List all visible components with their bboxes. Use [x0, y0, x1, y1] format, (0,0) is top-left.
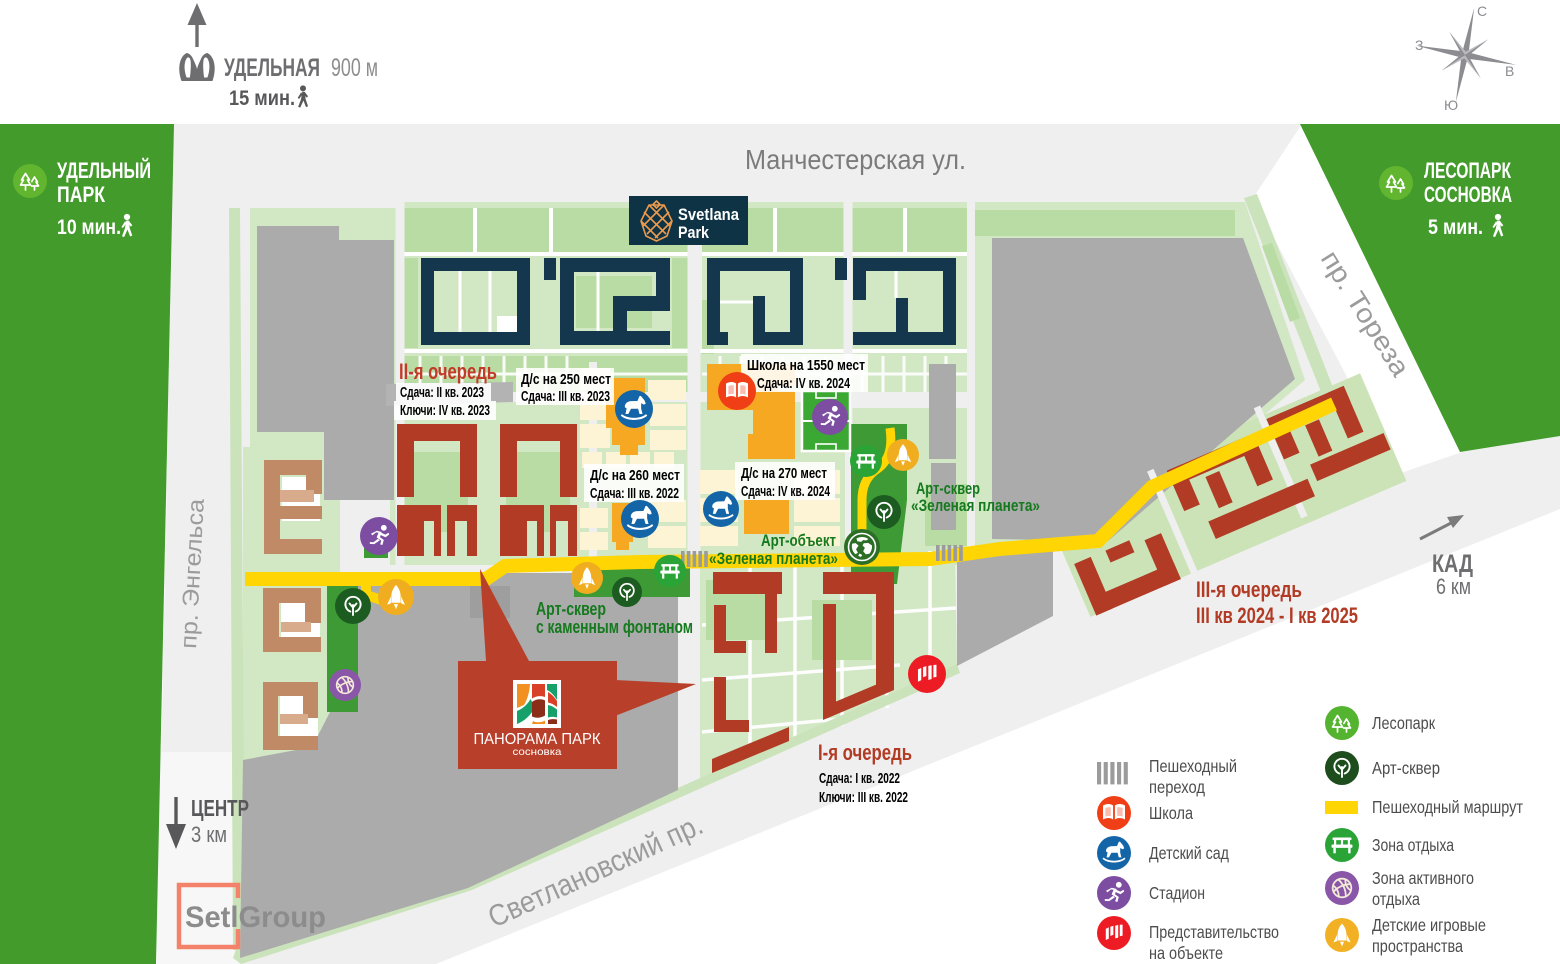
svg-text:С: С — [1477, 3, 1487, 19]
svg-text:Представительство: Представительство — [1149, 922, 1279, 942]
svg-text:с каменным фонтаном: с каменным фонтаном — [536, 617, 693, 637]
svg-text:Арт-сквер: Арт-сквер — [1372, 758, 1440, 778]
svg-text:Лесопарк: Лесопарк — [1372, 713, 1435, 733]
svg-text:«Зеленая планета»: «Зеленая планета» — [911, 497, 1040, 515]
svg-text:Пешеходный маршрут: Пешеходный маршрут — [1372, 797, 1523, 817]
svg-text:ЛЕСОПАРК: ЛЕСОПАРК — [1424, 158, 1511, 183]
svg-text:15 мин.: 15 мин. — [229, 87, 295, 110]
svg-text:ПАРК: ПАРК — [57, 182, 105, 207]
svg-text:Школа: Школа — [1149, 803, 1193, 823]
svg-text:Сдача: III кв. 2022: Сдача: III кв. 2022 — [590, 486, 679, 502]
svg-text:SetlGroup: SetlGroup — [185, 901, 326, 934]
svg-text:Зона активного: Зона активного — [1372, 868, 1474, 888]
svg-text:УДЕЛЬНАЯ: УДЕЛЬНАЯ — [224, 54, 320, 82]
svg-text:Арт-сквер: Арт-сквер — [916, 480, 980, 498]
svg-text:900 м: 900 м — [331, 54, 378, 82]
svg-text:I-я очередь: I-я очередь — [818, 740, 912, 765]
svg-text:Svetlana: Svetlana — [678, 205, 739, 224]
svg-text:Манчестерская ул.: Манчестерская ул. — [745, 144, 966, 175]
svg-text:пространства: пространства — [1372, 936, 1463, 956]
svg-text:на объекте: на объекте — [1149, 943, 1223, 963]
svg-text:Сдача: I кв. 2022: Сдача: I кв. 2022 — [819, 771, 900, 787]
svg-text:Зона отдыха: Зона отдыха — [1372, 835, 1454, 855]
svg-text:«Зеленая планета»: «Зеленая планета» — [709, 550, 838, 568]
svg-text:Д/с на 250 мест: Д/с на 250 мест — [521, 372, 611, 388]
svg-text:сосновка: сосновка — [513, 746, 562, 758]
svg-text:10 мин.: 10 мин. — [57, 216, 121, 239]
svg-text:III-я очередь: III-я очередь — [1196, 577, 1302, 602]
svg-text:Пешеходный: Пешеходный — [1149, 756, 1237, 776]
svg-text:6 км: 6 км — [1436, 574, 1471, 599]
svg-text:Стадион: Стадион — [1149, 883, 1205, 903]
svg-text:Д/с на 270 мест: Д/с на 270 мест — [741, 466, 827, 482]
svg-text:III кв 2024 - I кв 2025: III кв 2024 - I кв 2025 — [1196, 603, 1358, 628]
svg-text:Арт-сквер: Арт-сквер — [536, 599, 606, 619]
svg-text:3 км: 3 км — [191, 822, 227, 847]
svg-text:5 мин.: 5 мин. — [1428, 216, 1483, 239]
svg-text:Сдача: II кв. 2023: Сдача: II кв. 2023 — [400, 385, 484, 401]
svg-text:В: В — [1505, 63, 1514, 79]
svg-text:II-я очередь: II-я очередь — [399, 359, 497, 384]
svg-text:Арт-объект: Арт-объект — [761, 532, 836, 550]
svg-text:УДЕЛЬНЫЙ: УДЕЛЬНЫЙ — [57, 158, 151, 183]
svg-text:Ключи: III кв. 2022: Ключи: III кв. 2022 — [819, 790, 908, 806]
svg-text:отдыха: отдыха — [1372, 889, 1420, 909]
svg-text:Детский сад: Детский сад — [1149, 843, 1229, 863]
svg-text:З: З — [1415, 37, 1423, 53]
svg-text:Ю: Ю — [1444, 97, 1458, 113]
svg-text:Сдача: IV кв. 2024: Сдача: IV кв. 2024 — [741, 484, 830, 500]
svg-text:переход: переход — [1149, 777, 1205, 797]
svg-text:ЦЕНТР: ЦЕНТР — [191, 795, 249, 821]
svg-text:Сдача: III кв. 2023: Сдача: III кв. 2023 — [521, 389, 610, 405]
svg-text:Ключи: IV кв. 2023: Ключи: IV кв. 2023 — [400, 403, 490, 419]
svg-text:Д/с на 260 мест: Д/с на 260 мест — [590, 468, 680, 484]
svg-text:Школа на 1550 мест: Школа на 1550 мест — [747, 358, 865, 374]
svg-text:Детские игровые: Детские игровые — [1372, 915, 1486, 935]
svg-text:Park: Park — [678, 223, 709, 242]
svg-text:Сдача: IV кв. 2024: Сдача: IV кв. 2024 — [757, 376, 850, 392]
svg-text:СОСНОВКА: СОСНОВКА — [1424, 182, 1512, 207]
